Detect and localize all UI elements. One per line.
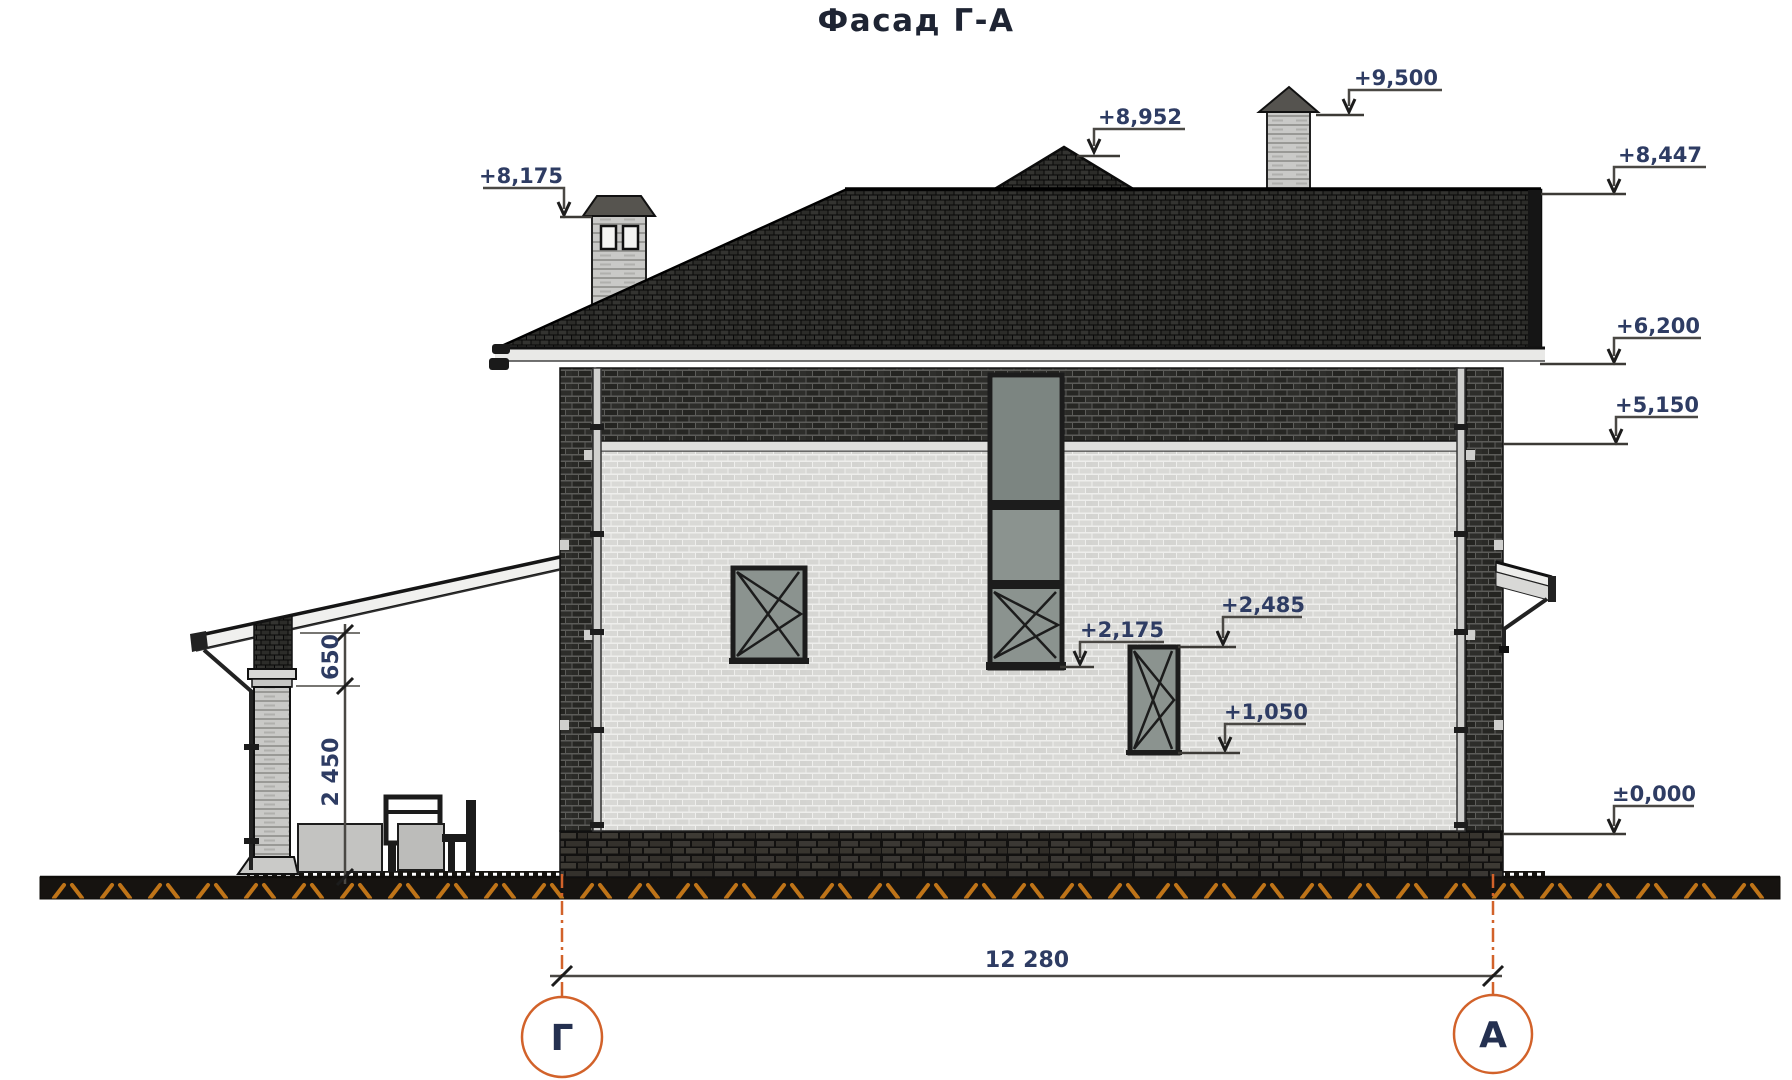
dim-overall-width: 12 280	[985, 948, 1069, 973]
svg-text:+8,952: +8,952	[1098, 105, 1182, 129]
svg-text:+1,050: +1,050	[1224, 700, 1308, 724]
elevation-mark-5150: +5,150	[1503, 393, 1699, 444]
chimney-vent	[623, 226, 638, 249]
dim-overall: 12 280 Г А	[522, 874, 1532, 1077]
pilaster-right	[1466, 368, 1503, 831]
elevation-mark-8447: +8,447	[1541, 143, 1706, 194]
plinth	[560, 831, 1503, 877]
porch-furniture	[298, 797, 476, 872]
svg-text:+2,485: +2,485	[1221, 593, 1305, 617]
right-roof-chimney	[1259, 87, 1318, 200]
elevation-mark-8952: +8,952	[1077, 105, 1185, 156]
house	[489, 87, 1545, 877]
axis-bubble-left: Г	[522, 997, 602, 1077]
ground-hatch	[40, 877, 1780, 899]
pilaster-left	[560, 368, 593, 831]
window-right	[1126, 647, 1182, 755]
porch-roof-beam	[196, 557, 560, 650]
main-roof	[489, 147, 1545, 370]
axis-label-left: Г	[551, 1018, 574, 1059]
svg-text:+5,150: +5,150	[1615, 393, 1699, 417]
chimney-vent	[601, 226, 616, 249]
svg-text:+8,447: +8,447	[1618, 143, 1702, 167]
facade-drawing-sheet: Фасад Г-А	[0, 0, 1792, 1080]
gutter-elbow	[489, 358, 509, 370]
svg-text:±0,000: ±0,000	[1612, 782, 1696, 806]
roof-peak	[993, 147, 1135, 190]
gutter-end	[492, 344, 510, 354]
eaves-fascia	[489, 344, 1545, 370]
elevation-mark-9500: +9,500	[1316, 66, 1442, 115]
dim-porch-upper: 650	[319, 634, 344, 680]
dim-porch-lower: 2 450	[319, 738, 344, 807]
canopy-downpipe	[1504, 599, 1547, 649]
svg-text:+6,200: +6,200	[1616, 314, 1700, 338]
canopy-right	[1496, 562, 1556, 653]
window-left	[729, 568, 809, 664]
axis-bubble-right: А	[1454, 995, 1532, 1073]
drawing-title: Фасад Г-А	[818, 3, 1015, 39]
elevation-mark-8175: +8,175	[479, 164, 592, 217]
axis-label-right: А	[1479, 1015, 1507, 1056]
canopy-end-cap	[1548, 576, 1556, 602]
svg-text:+2,175: +2,175	[1080, 618, 1164, 642]
roof-right-edge	[1528, 190, 1541, 349]
elevation-mark-6200: +6,200	[1540, 314, 1701, 364]
porch-downpipe	[204, 650, 259, 870]
svg-text:+8,175: +8,175	[479, 164, 563, 188]
svg-text:+9,500: +9,500	[1354, 66, 1438, 90]
drawing-svg: Фасад Г-А	[0, 0, 1792, 1080]
elevation-mark-0000: ±0,000	[1503, 782, 1696, 834]
stair-window	[986, 375, 1066, 670]
porch-left	[190, 557, 560, 874]
